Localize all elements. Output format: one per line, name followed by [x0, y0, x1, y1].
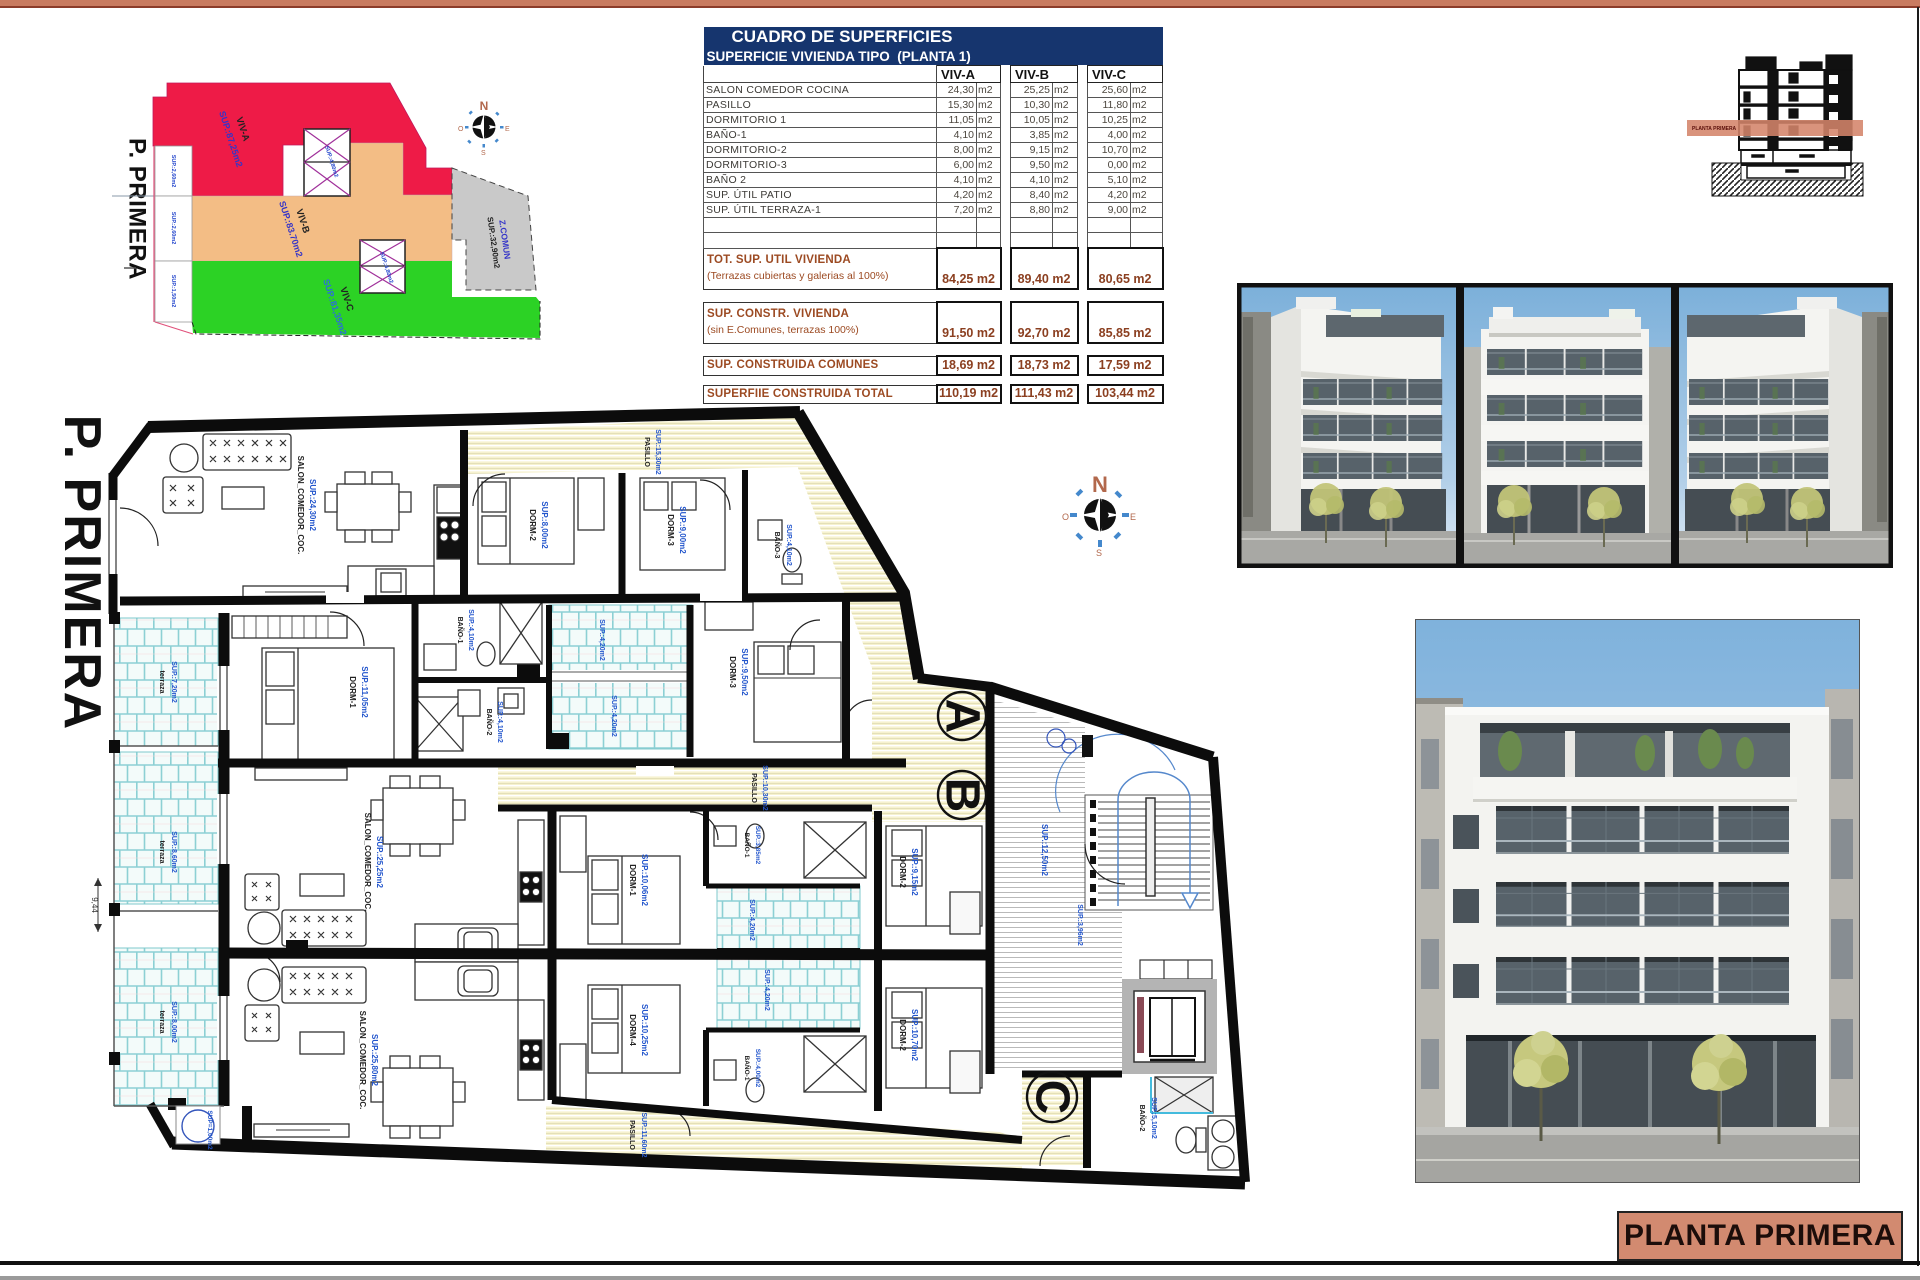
- svg-text:SALON_COMEDOR_COC.: SALON_COMEDOR_COC.: [296, 456, 305, 555]
- svg-text:SUP.:2,60m2: SUP.:2,60m2: [170, 155, 176, 188]
- svg-text:SUP.:9,15m2: SUP.:9,15m2: [910, 848, 919, 896]
- svg-text:N: N: [480, 99, 489, 113]
- svg-text:SUP.:25,80m2: SUP.:25,80m2: [370, 1034, 379, 1086]
- svg-text:SUP=1,00m2: SUP=1,00m2: [206, 1110, 213, 1150]
- svg-text:terraza: terraza: [158, 671, 165, 694]
- svg-text:SUP.:11,60m2: SUP.:11,60m2: [640, 1112, 647, 1157]
- svg-text:SUP.:10,70m2: SUP.:10,70m2: [910, 1009, 919, 1061]
- svg-text:SUP.:3,85m2: SUP.:3,85m2: [754, 826, 761, 865]
- svg-text:PLANTA PRIMERA: PLANTA PRIMERA: [1692, 126, 1737, 132]
- svg-text:SUP.:4,20m2: SUP.:4,20m2: [598, 619, 605, 661]
- svg-text:SUP.:4,10m2: SUP.:4,10m2: [467, 609, 474, 651]
- svg-text:SUP.:5,10m2: SUP.:5,10m2: [1150, 1097, 1157, 1139]
- svg-text:BAÑO-2: BAÑO-2: [1138, 1105, 1147, 1132]
- svg-text:B: B: [936, 778, 989, 813]
- svg-text:N: N: [1092, 472, 1108, 497]
- svg-text:P. PRIMERA: P. PRIMERA: [55, 415, 111, 732]
- svg-text:SUP.:8,00m2: SUP.:8,00m2: [540, 501, 549, 549]
- svg-text:SUP.:4,20m2: SUP.:4,20m2: [763, 969, 770, 1011]
- svg-text:BAÑO-1: BAÑO-1: [456, 617, 465, 644]
- svg-text:SUP.:4,20m2: SUP.:4,20m2: [748, 899, 755, 941]
- svg-text:S: S: [481, 150, 486, 157]
- svg-text:9,44: 9,44: [90, 897, 99, 913]
- svg-text:P. PRIMERA: P. PRIMERA: [124, 138, 151, 280]
- svg-text:terraza: terraza: [158, 1011, 165, 1034]
- svg-text:SUP.:4,10m2: SUP.:4,10m2: [496, 701, 503, 743]
- svg-text:SALON_COMEDOR_COC.: SALON_COMEDOR_COC.: [358, 1011, 367, 1110]
- svg-text:SUP.:15,30m2: SUP.:15,30m2: [654, 429, 661, 475]
- svg-text:DORM-2: DORM-2: [898, 856, 907, 888]
- svg-text:BAÑO-3: BAÑO-3: [773, 532, 782, 559]
- svg-text:SUP.:8,60m2: SUP.:8,60m2: [170, 831, 177, 873]
- svg-text:SALON_COMEDOR_COC.: SALON_COMEDOR_COC.: [363, 813, 372, 912]
- svg-text:SUP.:11,05m2: SUP.:11,05m2: [360, 666, 369, 718]
- svg-text:DORM-2: DORM-2: [528, 509, 537, 541]
- svg-text:SUP.:9,50m2: SUP.:9,50m2: [740, 648, 749, 696]
- svg-text:SUP.:3,96m2: SUP.:3,96m2: [1076, 904, 1083, 946]
- svg-text:SUP.:8,00m2: SUP.:8,00m2: [170, 1001, 177, 1043]
- svg-text:DORM-3: DORM-3: [666, 514, 675, 546]
- svg-text:SUP.:1,50m2: SUP.:1,50m2: [170, 275, 176, 308]
- svg-text:E: E: [505, 126, 510, 133]
- svg-text:terraza: terraza: [158, 841, 165, 864]
- svg-text:BAÑO-1: BAÑO-1: [743, 833, 752, 858]
- svg-text:SUP.:2,60m2: SUP.:2,60m2: [170, 212, 176, 245]
- svg-text:SUP.:9,00m2: SUP.:9,00m2: [678, 506, 687, 554]
- svg-text:SUP.:25,25m2: SUP.:25,25m2: [375, 836, 384, 888]
- svg-text:SUP.:4,20m2: SUP.:4,20m2: [610, 695, 617, 737]
- svg-text:A: A: [936, 699, 989, 734]
- svg-text:DORM-4: DORM-4: [628, 1014, 637, 1046]
- svg-text:O: O: [458, 126, 464, 133]
- svg-text:DORM-2: DORM-2: [898, 1019, 907, 1051]
- svg-text:SUP.:12,50m2: SUP.:12,50m2: [1040, 824, 1049, 876]
- svg-text:SUP.:10,30m2: SUP.:10,30m2: [761, 765, 768, 811]
- svg-text:PASILLO: PASILLO: [643, 437, 650, 467]
- svg-text:SUP.:10,06m2: SUP.:10,06m2: [640, 854, 649, 906]
- svg-text:SUP.:24,30m2: SUP.:24,30m2: [308, 479, 317, 531]
- svg-text:PASILLO: PASILLO: [750, 773, 757, 803]
- svg-text:C: C: [1026, 1080, 1079, 1115]
- svg-text:SUP.:4,00m2: SUP.:4,00m2: [754, 1049, 761, 1088]
- svg-text:BAÑO-2: BAÑO-2: [485, 709, 494, 736]
- svg-text:SUP.:7,20m2: SUP.:7,20m2: [170, 661, 177, 703]
- svg-text:SUP.:4,10m2: SUP.:4,10m2: [785, 524, 792, 566]
- svg-text:SUP.:10,25m2: SUP.:10,25m2: [640, 1004, 649, 1056]
- svg-text:S: S: [1096, 548, 1102, 558]
- svg-text:PASILLO: PASILLO: [628, 1120, 635, 1150]
- svg-text:DORM-3: DORM-3: [728, 656, 737, 688]
- svg-text:BAÑO-1: BAÑO-1: [743, 1056, 752, 1081]
- svg-text:DORM-1: DORM-1: [628, 864, 637, 896]
- svg-text:O: O: [1062, 512, 1069, 522]
- svg-text:E: E: [1130, 512, 1136, 522]
- svg-text:DORM-1: DORM-1: [348, 676, 357, 708]
